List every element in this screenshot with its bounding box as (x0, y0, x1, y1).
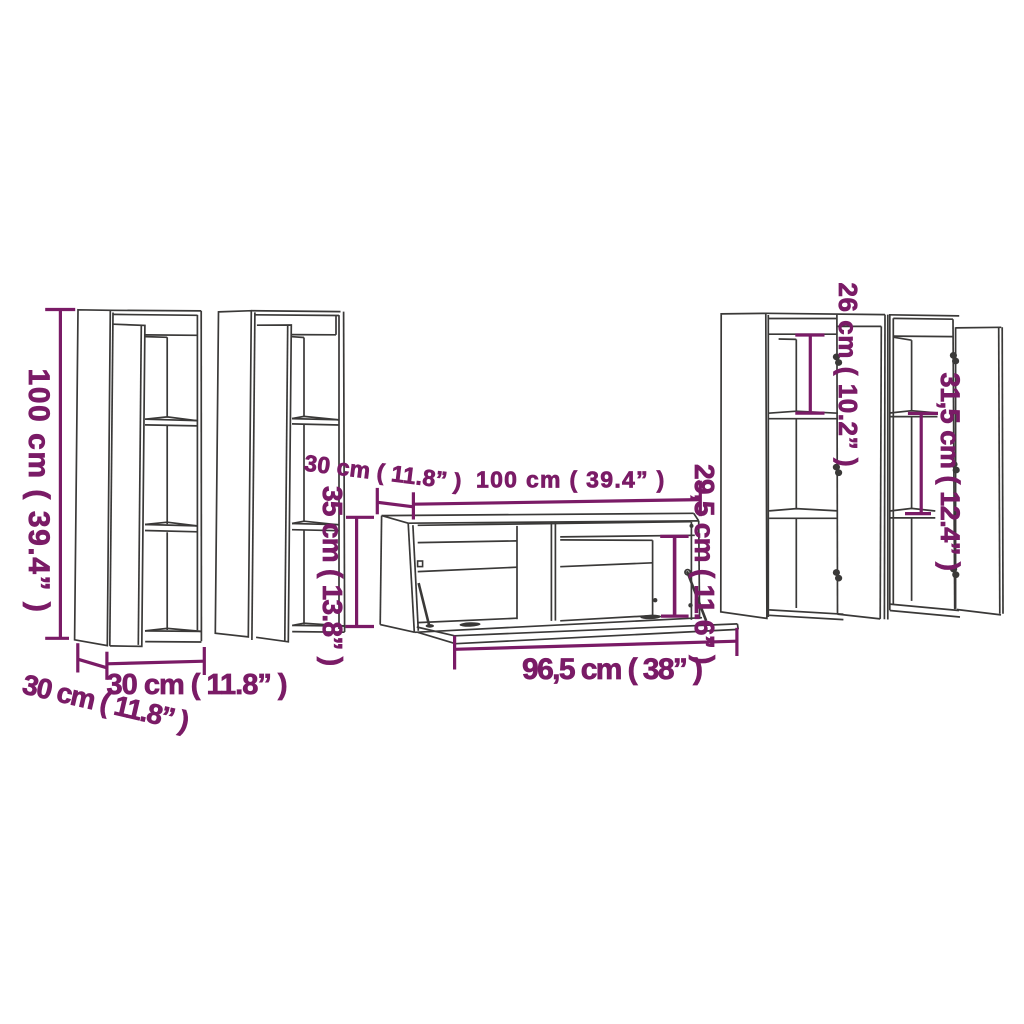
svg-text:29,5 cm ( 11.6” ): 29,5 cm ( 11.6” ) (689, 464, 720, 664)
svg-text:30 cm ( 11.8” ): 30 cm ( 11.8” ) (107, 669, 287, 701)
svg-text:35 cm ( 13.8” ): 35 cm ( 13.8” ) (317, 486, 348, 665)
svg-text:31,5 cm ( 12.4” ): 31,5 cm ( 12.4” ) (935, 373, 965, 571)
svg-text:96,5 cm ( 38” ): 96,5 cm ( 38” ) (522, 653, 702, 686)
svg-text:100 cm ( 39.4” ): 100 cm ( 39.4” ) (22, 369, 55, 614)
svg-text:26 cm ( 10.2” ): 26 cm ( 10.2” ) (833, 283, 863, 468)
svg-text:100 cm ( 39.4” ): 100 cm ( 39.4” ) (476, 467, 666, 493)
